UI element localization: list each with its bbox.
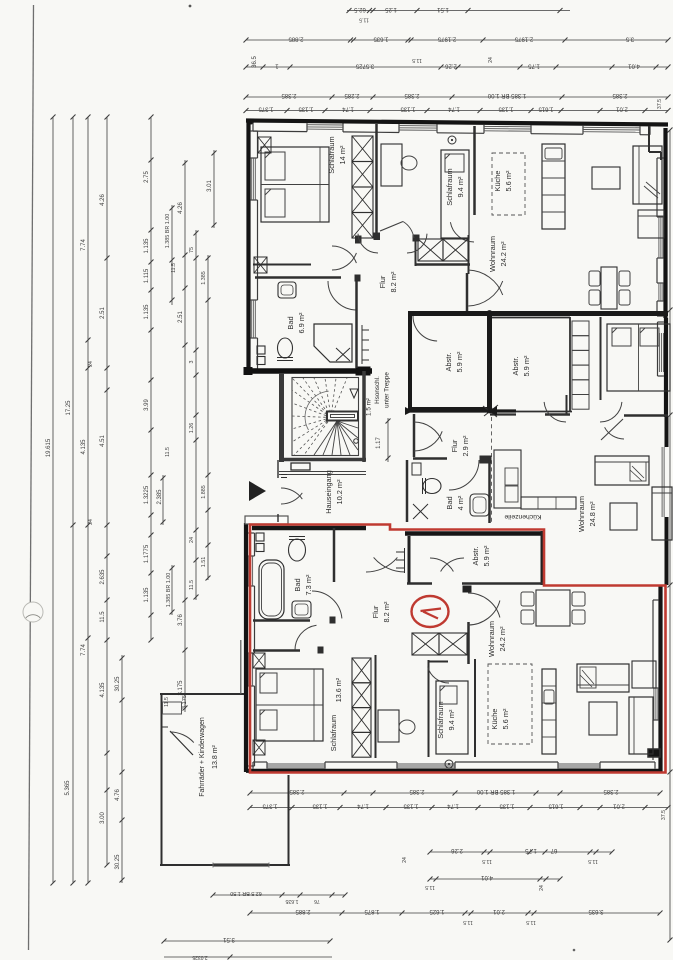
svg-text:7.74: 7.74 — [81, 644, 87, 656]
svg-text:17.25: 17.25 — [66, 400, 72, 416]
svg-text:1.5 m²: 1.5 m² — [366, 398, 373, 416]
svg-text:Bad: Bad — [293, 578, 302, 591]
svg-text:1.615: 1.615 — [538, 106, 554, 112]
svg-text:4 m²: 4 m² — [456, 495, 465, 510]
svg-text:4.51: 4.51 — [100, 435, 106, 447]
svg-text:1.3225: 1.3225 — [144, 485, 150, 504]
svg-text:1.385: 1.385 — [201, 271, 207, 285]
svg-text:1.135: 1.135 — [144, 238, 150, 254]
svg-text:4.01: 4.01 — [628, 63, 640, 69]
svg-text:1.26: 1.26 — [189, 423, 195, 434]
svg-text:4.26: 4.26 — [178, 202, 184, 214]
svg-text:7.74: 7.74 — [81, 239, 87, 251]
svg-text:9.4 m²: 9.4 m² — [447, 709, 456, 730]
svg-text:11.5: 11.5 — [588, 858, 598, 864]
svg-text:Schlafraum: Schlafraum — [436, 701, 445, 738]
svg-text:1.74: 1.74 — [447, 803, 459, 809]
svg-text:1.74: 1.74 — [357, 803, 369, 809]
svg-text:1.385 BR 1.00: 1.385 BR 1.00 — [165, 214, 171, 248]
svg-text:11.5: 11.5 — [359, 17, 369, 23]
svg-text:1.375: 1.375 — [262, 803, 278, 809]
svg-text:5.9 m²: 5.9 m² — [522, 355, 531, 376]
svg-text:4.76: 4.76 — [115, 789, 121, 801]
svg-text:8.2 m²: 8.2 m² — [382, 601, 391, 622]
svg-text:24: 24 — [402, 857, 408, 863]
svg-text:24.2 m²: 24.2 m² — [498, 626, 507, 652]
svg-text:2.1975: 2.1975 — [437, 36, 456, 42]
svg-text:1.875: 1.875 — [364, 908, 380, 914]
svg-text:67: 67 — [550, 847, 557, 853]
svg-text:1.1775: 1.1775 — [144, 544, 150, 563]
svg-text:2.285: 2.285 — [344, 92, 360, 98]
svg-text:24.8 m²: 24.8 m² — [588, 501, 597, 527]
svg-text:Abstr.: Abstr. — [471, 547, 480, 566]
svg-text:76: 76 — [314, 898, 320, 904]
svg-text:7.3 m²: 7.3 m² — [304, 574, 313, 595]
svg-text:Wohnraum: Wohnraum — [577, 496, 586, 532]
svg-text:1.75: 1.75 — [525, 847, 537, 853]
svg-text:1.375: 1.375 — [258, 106, 274, 112]
svg-text:Schlafraum: Schlafraum — [445, 168, 454, 205]
svg-text:2.1975: 2.1975 — [514, 36, 533, 42]
svg-text:2.385: 2.385 — [404, 92, 420, 98]
svg-text:11.5: 11.5 — [412, 57, 422, 63]
svg-text:2.0325: 2.0325 — [192, 954, 208, 960]
svg-text:unter Treppe: unter Treppe — [384, 372, 391, 408]
svg-text:3.635: 3.635 — [588, 908, 604, 914]
svg-text:2.75: 2.75 — [144, 171, 150, 183]
svg-text:3: 3 — [189, 361, 195, 364]
svg-text:10.2 m²: 10.2 m² — [335, 479, 344, 505]
svg-text:11.5: 11.5 — [189, 580, 195, 590]
svg-text:2.51: 2.51 — [178, 311, 184, 323]
svg-text:3.00: 3.00 — [100, 812, 106, 824]
svg-text:2.9 m²: 2.9 m² — [461, 435, 470, 456]
svg-text:Bad: Bad — [445, 496, 454, 509]
svg-text:1.385 BR 1.00: 1.385 BR 1.00 — [166, 573, 172, 607]
svg-text:24.2 m²: 24.2 m² — [499, 241, 508, 267]
svg-text:5.6 m²: 5.6 m² — [504, 170, 513, 191]
svg-text:4.135: 4.135 — [100, 682, 106, 698]
svg-text:1.135: 1.135 — [144, 304, 150, 320]
svg-text:1.74: 1.74 — [448, 106, 460, 112]
svg-text:1.885: 1.885 — [201, 485, 207, 499]
svg-text:4.135: 4.135 — [81, 439, 87, 455]
svg-text:24: 24 — [88, 361, 94, 367]
svg-text:2.26: 2.26 — [451, 847, 463, 853]
svg-text:13.6 m²: 13.6 m² — [334, 677, 343, 702]
svg-text:11.5: 11.5 — [463, 919, 473, 925]
svg-text:1.135: 1.135 — [403, 803, 419, 809]
svg-text:1.135: 1.135 — [400, 106, 416, 112]
svg-text:5.9 m²: 5.9 m² — [455, 351, 464, 372]
svg-text:1.25: 1.25 — [385, 6, 397, 12]
svg-text:11.5: 11.5 — [100, 611, 106, 623]
svg-text:4.26: 4.26 — [100, 194, 106, 206]
svg-text:Küche: Küche — [493, 171, 502, 192]
svg-text:1.635: 1.635 — [285, 898, 298, 904]
svg-text:37.5: 37.5 — [657, 99, 663, 109]
svg-text:1.135: 1.135 — [144, 587, 150, 603]
svg-text:Flur: Flur — [371, 605, 380, 618]
svg-text:11.5: 11.5 — [425, 884, 435, 890]
svg-text:Fahrräder + Kinderwagen: Fahrräder + Kinderwagen — [199, 717, 206, 797]
svg-text:Flur: Flur — [378, 275, 387, 288]
svg-text:Abstr.: Abstr. — [511, 357, 520, 376]
svg-text:1.625: 1.625 — [429, 908, 445, 914]
svg-text:14 m²: 14 m² — [338, 145, 347, 164]
svg-text:1.17: 1.17 — [376, 437, 382, 449]
svg-text:62.5 BR 1.50: 62.5 BR 1.50 — [230, 890, 261, 896]
svg-text:Wohnraum: Wohnraum — [488, 236, 497, 272]
svg-text:1.385 BR 1.00: 1.385 BR 1.00 — [476, 788, 515, 794]
svg-text:24: 24 — [488, 57, 494, 63]
svg-text:11.5: 11.5 — [165, 447, 171, 457]
svg-text:75: 75 — [189, 247, 195, 253]
svg-text:2.385: 2.385 — [612, 92, 628, 98]
svg-text:13.8 m²: 13.8 m² — [212, 744, 219, 768]
svg-text:30.25: 30.25 — [115, 854, 121, 870]
svg-text:1.115: 1.115 — [144, 268, 150, 283]
svg-text:2.635: 2.635 — [100, 569, 106, 585]
svg-text:3.175: 3.175 — [182, 695, 188, 709]
svg-text:1.135: 1.135 — [499, 803, 515, 809]
svg-text:2.51: 2.51 — [100, 307, 106, 319]
svg-text:62.5: 62.5 — [354, 6, 366, 12]
svg-text:3.5725: 3.5725 — [355, 63, 374, 69]
svg-text:Flur: Flur — [450, 439, 459, 452]
svg-text:3.5: 3.5 — [625, 36, 634, 42]
svg-text:2.385: 2.385 — [289, 788, 305, 794]
svg-text:2.385: 2.385 — [603, 788, 619, 794]
svg-text:2.385: 2.385 — [157, 489, 163, 505]
svg-text:1.635: 1.635 — [373, 36, 389, 42]
svg-text:Wohnraum: Wohnraum — [487, 621, 496, 657]
svg-text:3.51: 3.51 — [223, 936, 235, 942]
svg-text:30.25: 30.25 — [115, 676, 121, 692]
svg-text:1.135: 1.135 — [298, 106, 314, 112]
svg-text:5.365: 5.365 — [65, 780, 71, 796]
svg-text:Schlafraum: Schlafraum — [329, 715, 338, 751]
svg-text:37.5: 37.5 — [661, 810, 667, 820]
svg-text:4.01: 4.01 — [481, 874, 493, 880]
svg-text:1.51: 1.51 — [201, 557, 207, 568]
svg-text:Bad: Bad — [286, 316, 295, 329]
svg-text:24: 24 — [88, 519, 94, 525]
svg-text:11.5: 11.5 — [526, 919, 536, 925]
svg-text:1.385 BR 1.00: 1.385 BR 1.00 — [487, 92, 526, 98]
svg-text:3.76: 3.76 — [178, 614, 184, 626]
svg-text:24: 24 — [189, 537, 195, 543]
svg-text:1.135: 1.135 — [312, 803, 328, 809]
svg-text:8.2 m²: 8.2 m² — [389, 271, 398, 292]
svg-text:2.26: 2.26 — [445, 63, 457, 69]
svg-text:1.135: 1.135 — [498, 106, 514, 112]
svg-text:2.01: 2.01 — [493, 908, 505, 914]
svg-text:2.885: 2.885 — [288, 36, 304, 42]
svg-text:11.5: 11.5 — [171, 263, 177, 273]
svg-text:6.9 m²: 6.9 m² — [297, 312, 306, 333]
svg-text:9.4 m²: 9.4 m² — [456, 176, 465, 197]
svg-text:Schlafraum: Schlafraum — [327, 136, 336, 173]
svg-text:24: 24 — [539, 885, 545, 891]
svg-text:1.74: 1.74 — [342, 106, 354, 112]
svg-text:5.9 m²: 5.9 m² — [482, 545, 491, 566]
svg-text:19.615: 19.615 — [46, 438, 52, 457]
svg-text:3.01: 3.01 — [207, 180, 213, 192]
svg-text:2.385: 2.385 — [409, 788, 425, 794]
svg-text:Abstr.: Abstr. — [444, 353, 453, 372]
svg-text:2.01: 2.01 — [613, 803, 625, 809]
svg-text:3.99: 3.99 — [144, 399, 150, 411]
svg-text:5.6 m²: 5.6 m² — [501, 708, 510, 729]
svg-text:Hsonschl.: Hsonschl. — [374, 376, 381, 404]
svg-text:2.385: 2.385 — [281, 92, 297, 98]
svg-text:2.01: 2.01 — [616, 106, 628, 112]
svg-text:36.5: 36.5 — [252, 56, 258, 68]
svg-text:Küchenzeile: Küchenzeile — [504, 513, 541, 520]
svg-text:Küche: Küche — [490, 709, 499, 730]
svg-text:Hauseingang: Hauseingang — [324, 470, 333, 514]
svg-text:11.5: 11.5 — [482, 858, 492, 864]
svg-text:1.615: 1.615 — [548, 803, 564, 809]
svg-text:1.75: 1.75 — [528, 63, 540, 69]
svg-text:2.885: 2.885 — [295, 908, 311, 914]
svg-text:1.51: 1.51 — [437, 6, 449, 12]
